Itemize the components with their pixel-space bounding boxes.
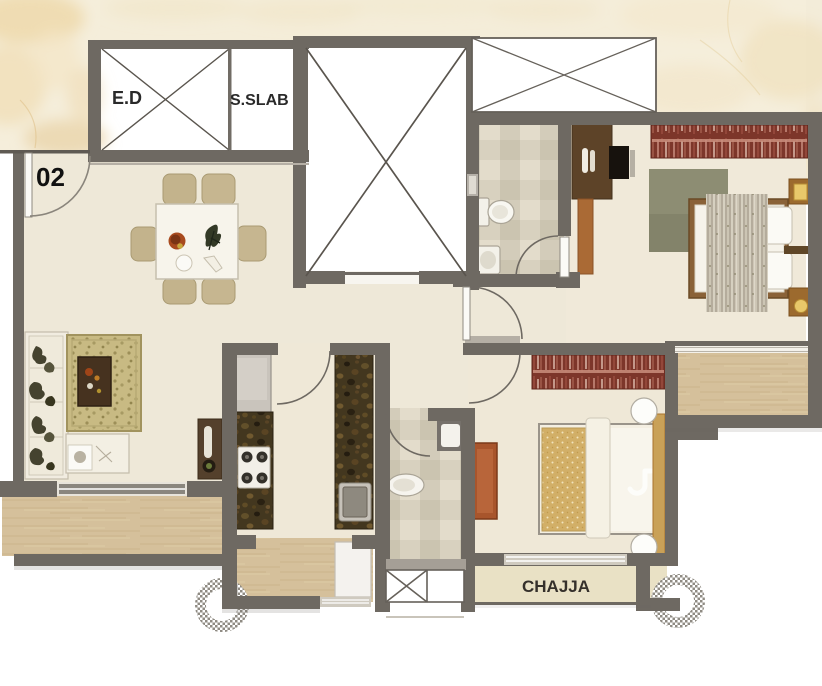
svg-text:E.D: E.D [112, 88, 142, 108]
svg-text:S.SLAB: S.SLAB [230, 92, 289, 109]
svg-text:02: 02 [36, 162, 65, 192]
svg-text:CHAJJA: CHAJJA [522, 577, 590, 596]
